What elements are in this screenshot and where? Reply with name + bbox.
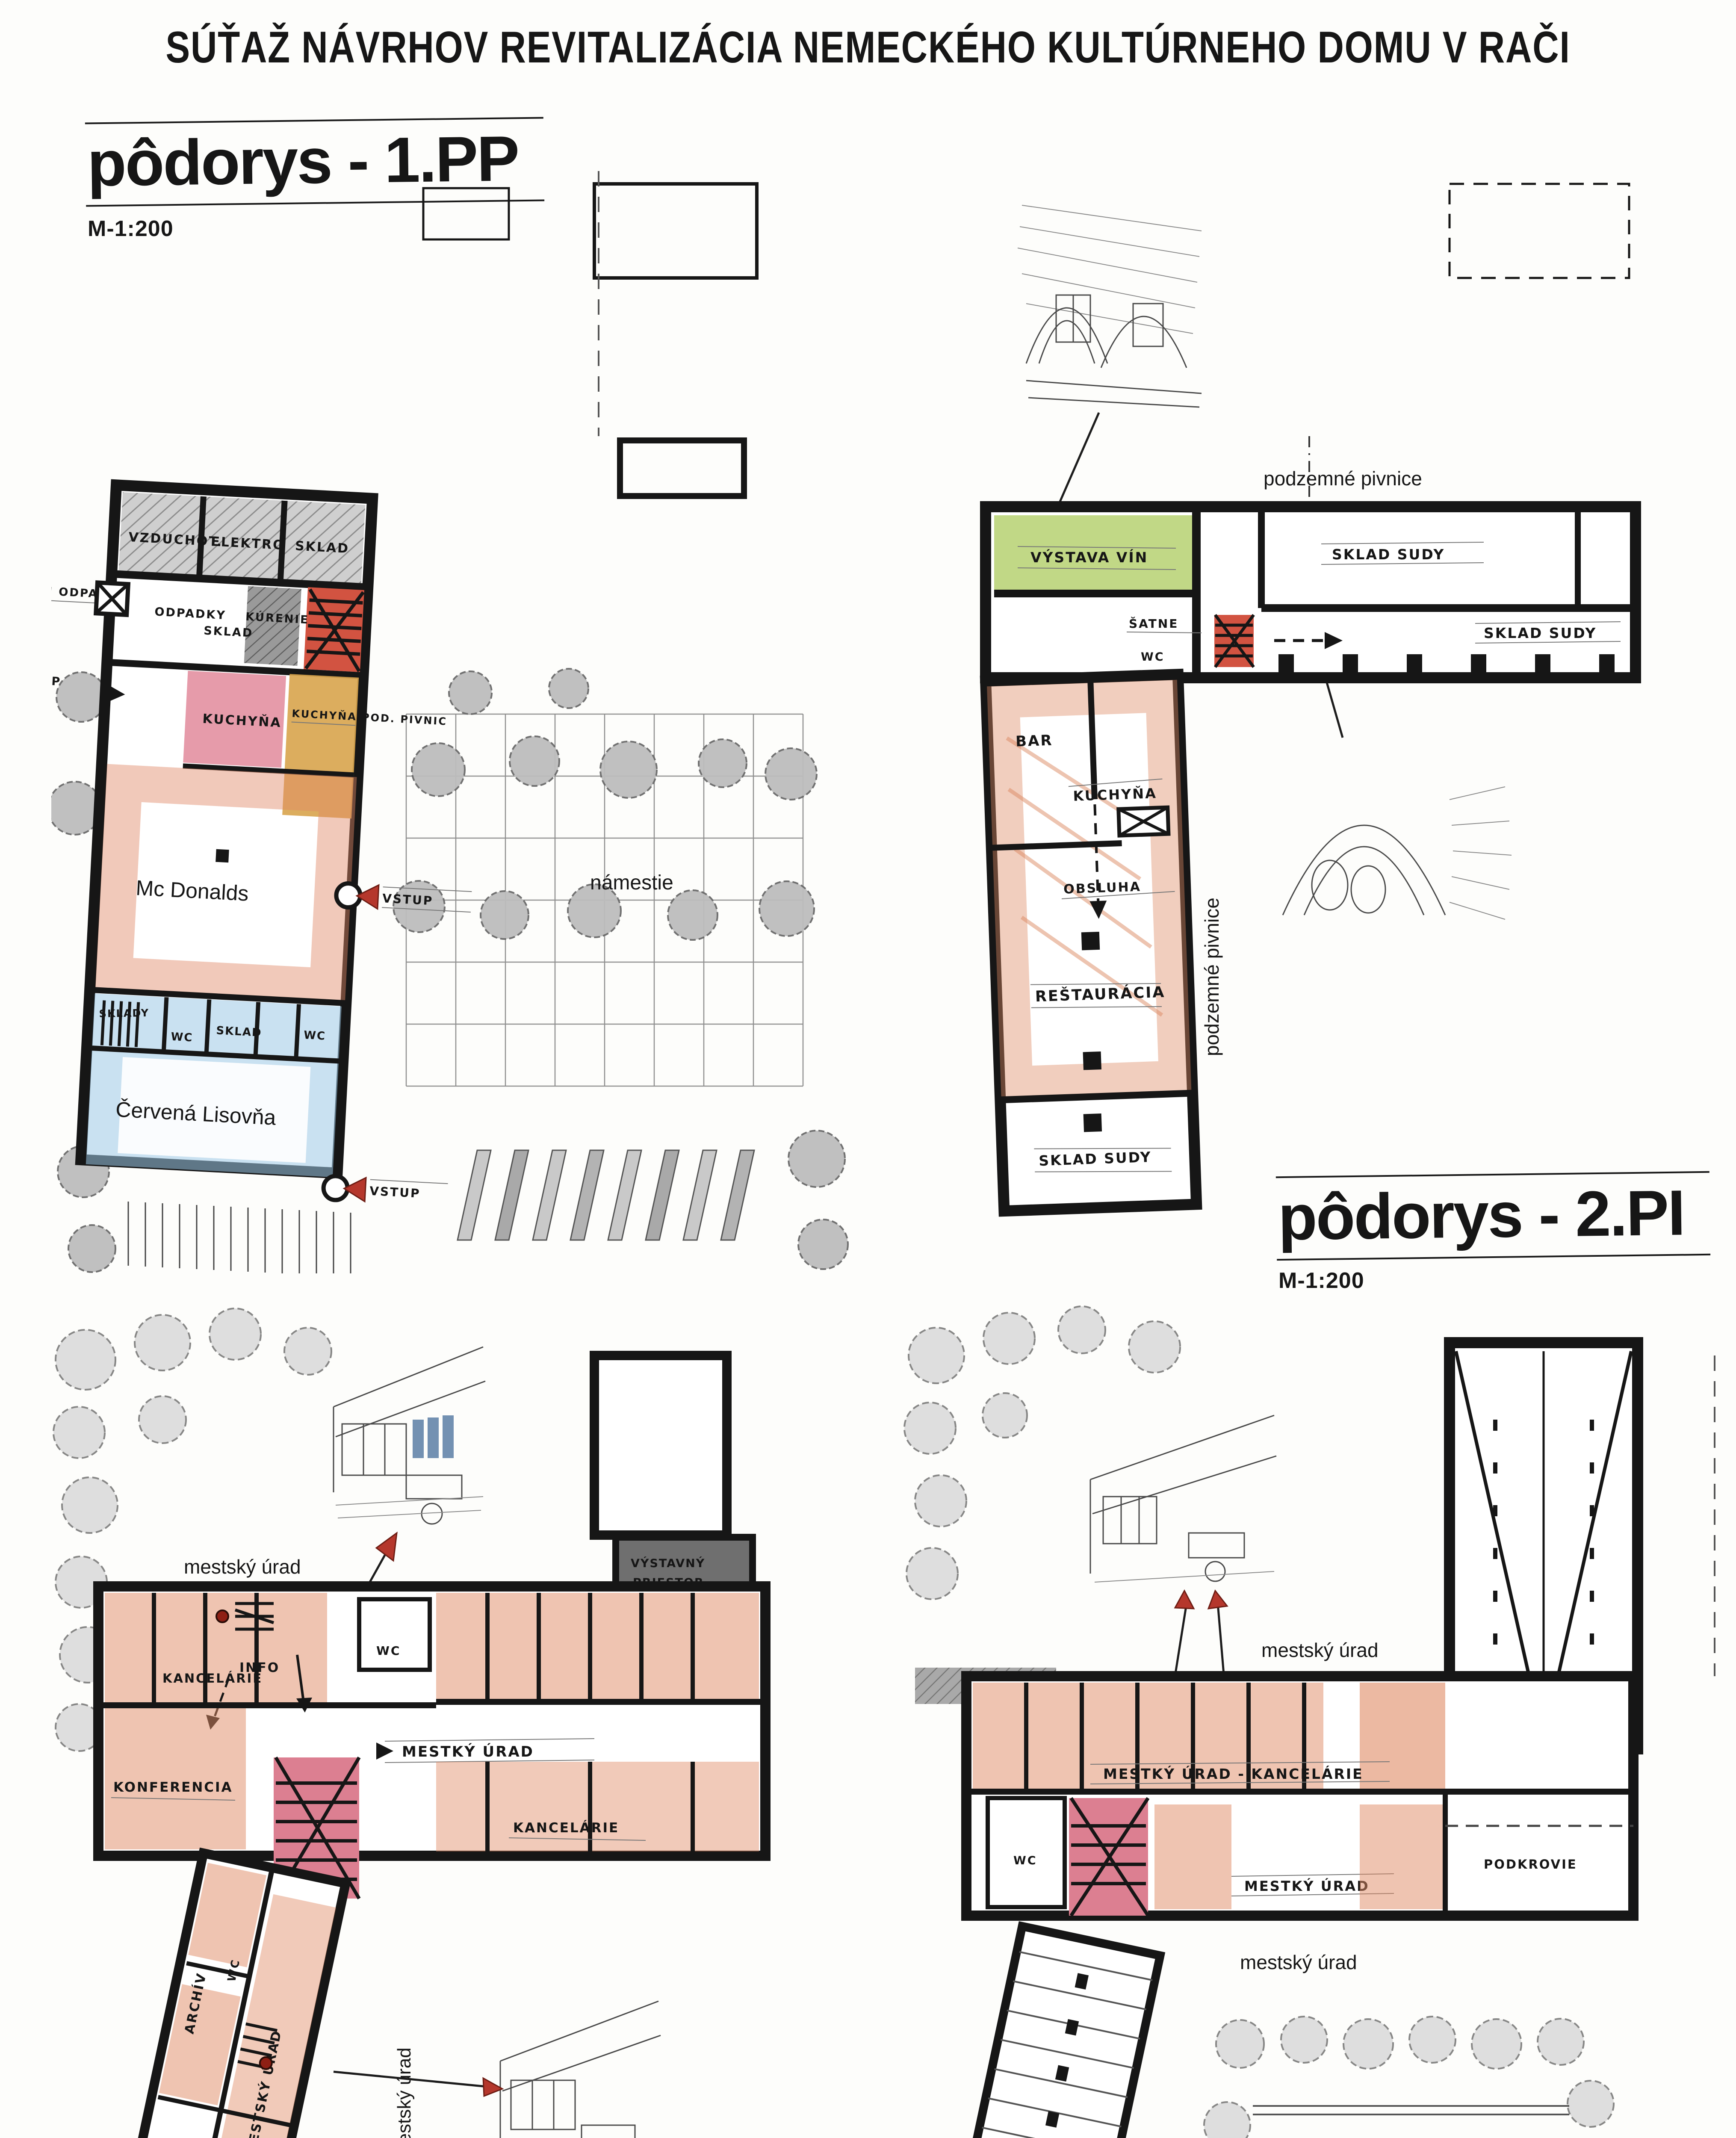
wing-vertical: BAR KUCHYŇA OBSLUHA REŠTAURÁCIA SKLAD SU… (986, 674, 1196, 1211)
label-mestky-urad-hand: MESTKÝ ÚRAD (402, 1743, 534, 1760)
label-mestsky-urad-1-3np: mestský úrad (1261, 1639, 1379, 1661)
vignette-cellar-2 (1283, 787, 1512, 919)
label-podkrovie-3np: PODKROVIE (1484, 1857, 1577, 1872)
label-sklad-mid: SKLAD (204, 624, 254, 640)
label-info: INFO (239, 1660, 280, 1675)
wing-diagonal-3np (934, 1926, 1160, 2138)
label-sklad-top: SKLAD (295, 538, 350, 556)
plan-2np-drawing: mestský úrad mestský úrad VÝSTAVNÝ PRIES… (34, 1291, 881, 2138)
rooms-right-top (436, 1593, 759, 1700)
building-1pp: VZDUCHOT. ELEKTRO SKLAD VÝŤAH ODPADKY OD… (51, 480, 492, 1207)
label-sklad-dolne: SKLAD (216, 1024, 263, 1039)
room-kurenie (244, 586, 301, 666)
label-wc-1-2np: WC (376, 1644, 401, 1658)
vignette-attic (1090, 1415, 1276, 1582)
sketch-accent-blue (413, 1415, 454, 1458)
rooms-bottom-right-3np (1360, 1804, 1445, 1909)
label-sklad-sudy-2: SKLAD SUDY (1484, 625, 1597, 641)
label-kancelarie-2: KANCELÁRIE (513, 1820, 619, 1836)
plan-1pp-drawing: námestie VZDUCHOT. ELEKTRO SKLAD VÝŤAH O… (51, 162, 855, 1274)
label-sklad-sudy-1: SKLAD SUDY (1332, 546, 1445, 563)
label-mestsky-urad-1: mestský úrad (184, 1556, 301, 1578)
label-wc-2: WC (303, 1029, 326, 1043)
label-vstup-horne: VSTUP (51, 673, 62, 688)
column (1084, 1113, 1102, 1132)
tree (68, 1225, 115, 1272)
arrow-to-vignette-1 (376, 1533, 397, 1561)
tree (798, 1220, 848, 1269)
building-band-3np: MESTKÝ ÚRAD - KANCELÁRIE WC MESTKÝ ÚRAD … (915, 1668, 1633, 1916)
label-kuchyna-2pp: KUCHYŇA (1073, 785, 1157, 804)
courtyard-trees-3np (1199, 2017, 1619, 2138)
arrow-to-attic-1 (1175, 1591, 1194, 1609)
label-mestky-urad-hand-3np: MESTKÝ ÚRAD (1244, 1878, 1370, 1894)
label-vystavny-1: VÝSTAVNÝ (631, 1556, 705, 1570)
label-vstup-dolne: VSTUP (369, 1184, 421, 1201)
label-podzemne-pivnice-v: podzemné pivnice (1201, 898, 1223, 1056)
rooms-right-bottom (436, 1762, 759, 1852)
label-sklady: SKLADY (99, 1007, 149, 1020)
hall-upper-block (594, 1355, 727, 1535)
poster-title: SÚŤAŽ NÁVRHOV REVITALIZÁCIA NEMECKÉHO KU… (165, 22, 1570, 73)
pergola-lines (1244, 2106, 1582, 2138)
label-vstup-stredne: VSTUP (382, 891, 434, 908)
rooms-kancelarie-top (105, 1593, 327, 1703)
room-mid-3np (1154, 1804, 1231, 1909)
label-konferencia: KONFERENCIA (113, 1780, 233, 1795)
dashed-context (1450, 184, 1629, 278)
label-wc-2pp: WC (1141, 650, 1165, 664)
context-building-outline (594, 184, 757, 278)
parking-strips (458, 1150, 754, 1240)
context-building-outline-2 (620, 440, 744, 496)
label-mestsky-urad-2-3np: mestský úrad (1240, 1951, 1357, 1973)
trees-3np (904, 1306, 1180, 1599)
label-namestie: námestie (590, 871, 673, 894)
building-band-2np: KANCELÁRIE INFO WC KONFERENCIA (98, 1586, 765, 1899)
wing-horizontal: VÝSTAVA VÍN SKLAD SUDY SKLAD SUDY ŠATNE … (986, 184, 1636, 678)
paving-stripes (128, 1202, 351, 1273)
label-mestsky-urad-zvisle: mestský úrad (394, 2047, 415, 2138)
label-bar: BAR (1015, 732, 1053, 750)
plan-2pp-drawing: podzemné pivnice VÝSTAVA VÍN SKLAD SUDY … (877, 180, 1736, 1240)
arrow-to-attic-2 (1208, 1591, 1227, 1609)
tree (56, 672, 106, 722)
wing-diagonal-2np: ARCHÍV WC MESTSKÝ ÚRAD PODKROVIE (101, 1853, 346, 2138)
label-urad-kancelarie: MESTKÝ ÚRAD - KANCELÁRIE (1103, 1765, 1364, 1782)
column (1083, 1051, 1101, 1070)
column (216, 849, 229, 863)
context-building-outline-3 (423, 188, 509, 239)
label-podzemne-pivnice-h: podzemné pivnice (1264, 467, 1422, 490)
column (1081, 932, 1100, 950)
label-satne: ŠATNE (1129, 616, 1178, 631)
label-wc-3np: WC (1013, 1854, 1037, 1867)
label-wc-1: WC (171, 1031, 193, 1045)
vignette-office-1 (334, 1347, 485, 1524)
room-konferencia (105, 1708, 246, 1849)
plan-3np-drawing: mestský úrad MESTKÝ ÚRAD - KANCELÁRIE WC… (889, 1291, 1736, 2138)
tree (788, 1131, 845, 1187)
arrow-to-vignette-2 (483, 2078, 502, 2096)
vignette-cellar-1 (1018, 205, 1202, 407)
vignette-office-2 (500, 2001, 661, 2138)
label-vystava-vin: VÝSTAVA VÍN (1030, 549, 1148, 566)
scale-2pp: M-1:200 (1278, 1268, 1364, 1293)
rooms-top-right-3np (1360, 1683, 1445, 1790)
